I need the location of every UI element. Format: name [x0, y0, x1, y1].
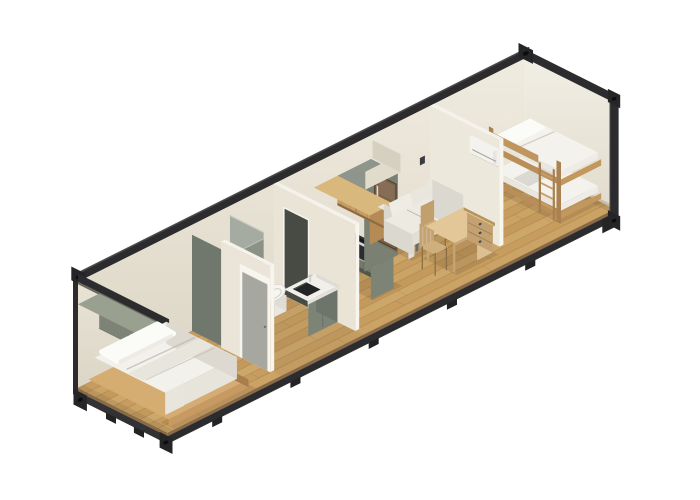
bathroom-door: [240, 264, 270, 372]
container-home-render: 3D isometric cutaway render of a shippin…: [0, 0, 700, 500]
isometric-scene: 3D isometric cutaway render of a shippin…: [0, 0, 700, 500]
container-right-post: [608, 89, 620, 231]
